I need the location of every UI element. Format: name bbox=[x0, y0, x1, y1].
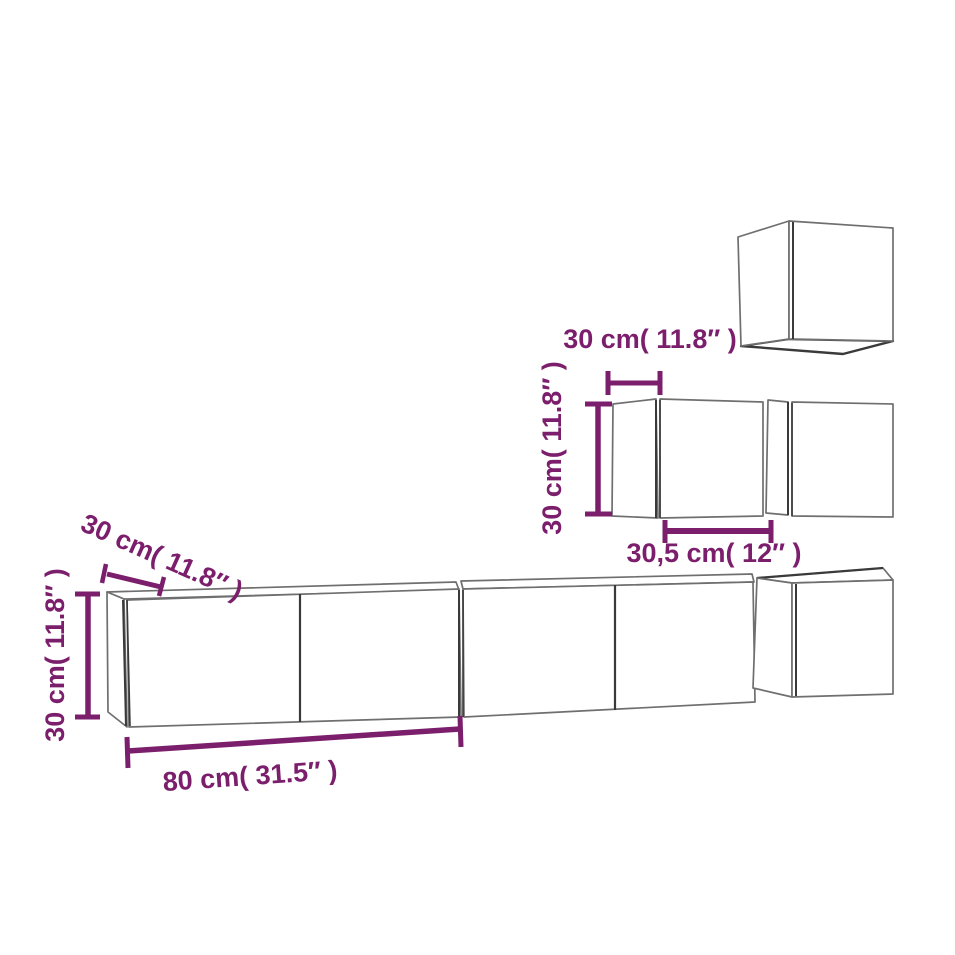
dimension-label-top-cube-depth: 30 cm( 11.8″ ) bbox=[555, 323, 745, 355]
furniture-line-drawing bbox=[0, 0, 955, 955]
wall-cube-top-right-drawing bbox=[738, 221, 893, 354]
height-line-long-bench bbox=[75, 594, 100, 717]
dimension-diagram: 30 cm( 11.8″ ) 30 cm( 11.8″ ) 30,5 cm( 1… bbox=[0, 0, 955, 955]
depth-bracket-middle bbox=[608, 371, 660, 395]
dimension-label-long-height: 30 cm( 11.8″ ) bbox=[39, 560, 71, 750]
tv-bench-right-unit-drawing bbox=[459, 574, 755, 717]
height-line-middle bbox=[585, 404, 612, 514]
tv-bench-left-unit-drawing bbox=[107, 582, 461, 727]
dimension-label-mid-height: 30 cm( 11.8″ ) bbox=[536, 353, 568, 543]
dimension-label-mid-width: 30,5 cm( 12″ ) bbox=[604, 537, 824, 569]
wall-cabinet-middle-left-drawing bbox=[612, 399, 763, 518]
cube-bottom-right-drawing bbox=[753, 568, 893, 697]
wall-cabinet-middle-right-drawing bbox=[766, 400, 893, 517]
